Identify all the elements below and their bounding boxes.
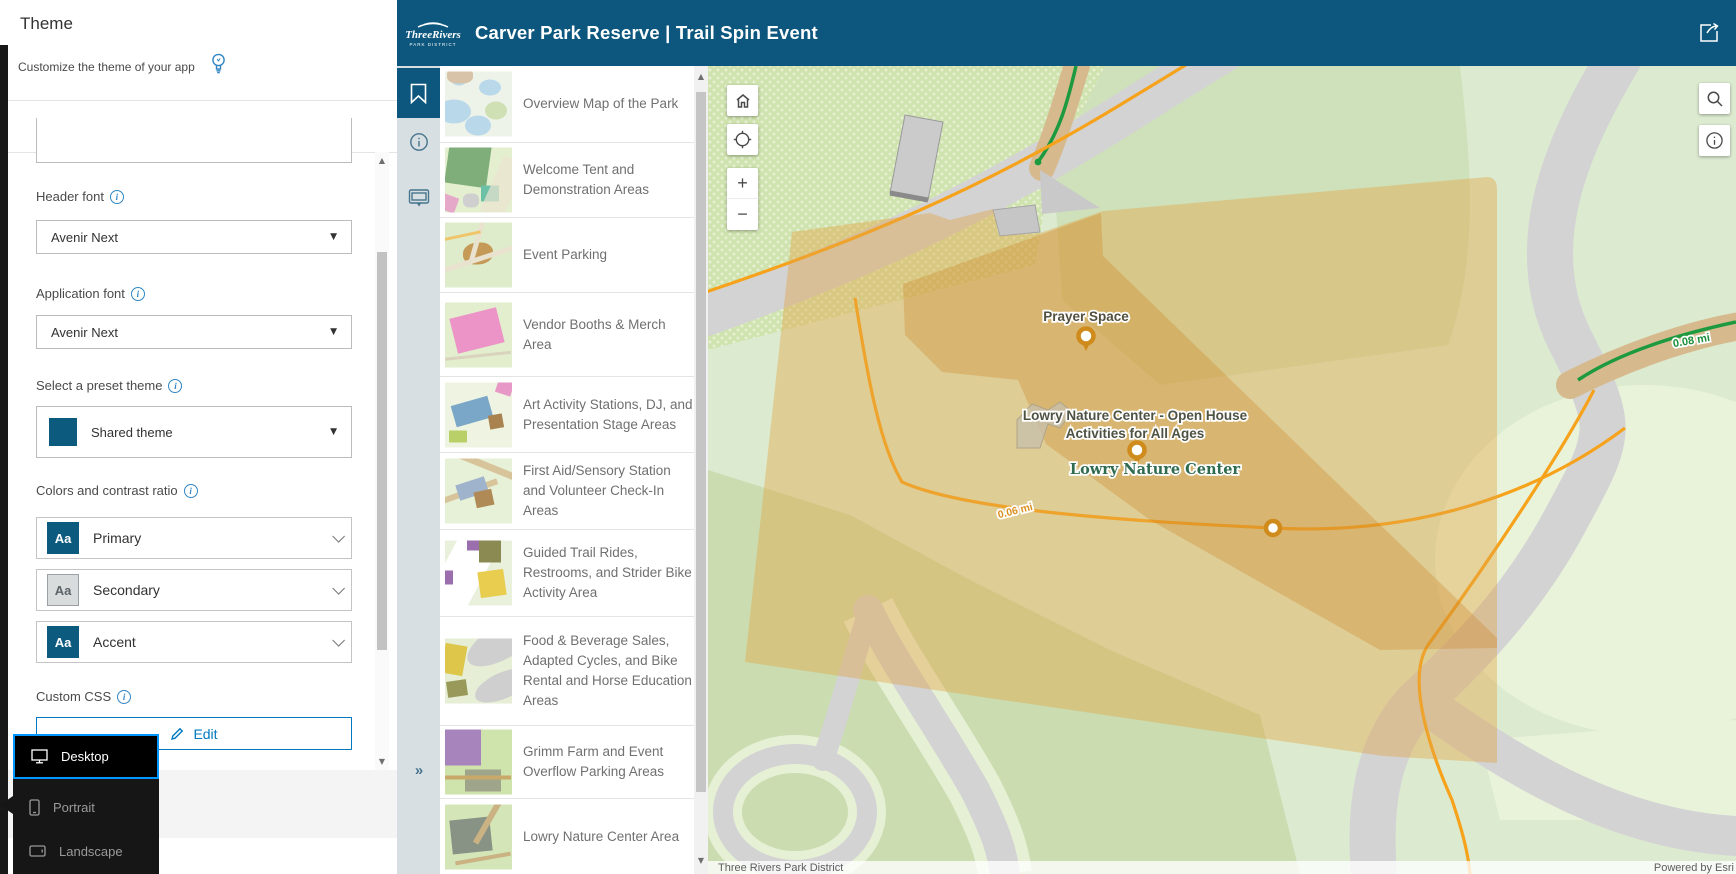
- map-graphics: Prayer Space Lowry Nature Center - Open …: [708, 66, 1736, 874]
- map-canvas[interactable]: Prayer Space Lowry Nature Center - Open …: [708, 66, 1736, 874]
- divider: [0, 100, 397, 101]
- bookmarks-tab-selected[interactable]: [397, 68, 440, 118]
- scroll-down-arrow[interactable]: ▼: [375, 757, 389, 766]
- app-info-button[interactable]: [397, 127, 440, 157]
- home-button[interactable]: [727, 85, 758, 116]
- device-mode-menu: Desktop Portrait Landscape: [13, 734, 159, 874]
- custom-css-label: Custom CSS i: [36, 689, 131, 704]
- bookmark-item[interactable]: Event Parking: [440, 218, 694, 293]
- scroll-down-arrow[interactable]: ▼: [694, 856, 708, 865]
- preset-theme-dropdown[interactable]: Shared theme▼: [36, 406, 352, 458]
- landscape-icon: [29, 845, 46, 857]
- theme-panel-scrollbar[interactable]: ▲ ▼: [375, 152, 389, 770]
- bookmark-item[interactable]: Art Activity Stations, DJ, and Presentat…: [440, 377, 694, 453]
- zoom-out-button[interactable]: −: [727, 199, 758, 230]
- legend-icon: [408, 188, 430, 209]
- bookmark-thumbnail: [445, 223, 512, 288]
- bookmark-thumbnail: [445, 459, 512, 524]
- attribution-source: Three Rivers Park District: [718, 862, 843, 874]
- panel-title: Theme: [20, 14, 73, 34]
- map-info-button[interactable]: [1699, 125, 1730, 156]
- search-button[interactable]: [1699, 83, 1730, 114]
- bookmark-thumbnail: [445, 639, 512, 704]
- scroll-up-arrow[interactable]: ▲: [375, 156, 389, 165]
- bookmark-item[interactable]: Overview Map of the Park: [440, 66, 694, 143]
- scroll-up-arrow[interactable]: ▲: [694, 72, 708, 81]
- accent-swatch: Aa: [47, 626, 79, 658]
- home-icon: [734, 92, 752, 110]
- zoom-controls: + −: [727, 168, 758, 230]
- bookmark-thumbnail: [445, 541, 512, 606]
- edit-pencil-icon: [170, 727, 184, 741]
- theme-swatch: [49, 418, 77, 446]
- primary-color-row[interactable]: Aa Primary: [36, 517, 352, 559]
- info-icon[interactable]: i: [168, 379, 182, 393]
- scrolled-text-input[interactable]: [36, 118, 352, 163]
- expand-panel-icon[interactable]: »: [397, 762, 440, 779]
- info-icon: [1705, 131, 1724, 150]
- three-rivers-logo: ThreeRivers PARK DISTRICT: [405, 19, 461, 47]
- portrait-icon: [29, 799, 40, 816]
- chevron-down-icon: [332, 582, 345, 595]
- search-icon: [1706, 90, 1724, 108]
- device-mode-desktop[interactable]: Desktop: [13, 734, 159, 779]
- zoom-in-button[interactable]: +: [727, 168, 758, 199]
- bookmark-item[interactable]: First Aid/Sensory Station and Volunteer …: [440, 453, 694, 530]
- open-house-label-line2: Activities for All Ages: [1066, 426, 1205, 441]
- scrollbar-thumb[interactable]: [377, 252, 387, 650]
- preset-theme-label: Select a preset theme i: [36, 378, 182, 393]
- export-icon[interactable]: [1698, 22, 1720, 49]
- lightbulb-icon[interactable]: [210, 52, 227, 81]
- bookmark-thumbnail: [445, 302, 512, 367]
- bookmark-item[interactable]: Food & Beverage Sales, Adapted Cycles, a…: [440, 617, 694, 726]
- bookmark-item[interactable]: Guided Trail Rides, Restrooms, and Strid…: [440, 530, 694, 617]
- bookmark-thumbnail: [445, 72, 512, 137]
- locate-icon: [733, 130, 752, 149]
- info-icon[interactable]: i: [117, 690, 131, 704]
- bookmark-item[interactable]: Lowry Nature Center Area: [440, 799, 694, 874]
- accent-color-row[interactable]: Aa Accent: [36, 621, 352, 663]
- info-icon: [409, 132, 429, 152]
- bookmark-thumbnail: [445, 382, 512, 447]
- info-icon[interactable]: i: [110, 190, 124, 204]
- popup-pointer: [0, 796, 13, 814]
- application-font-dropdown[interactable]: Avenir Next▼: [36, 315, 352, 349]
- attribution-esri: Powered by Esri: [1654, 862, 1734, 874]
- app-title: Carver Park Reserve | Trail Spin Event: [475, 22, 818, 44]
- app-header: ThreeRivers PARK DISTRICT Carver Park Re…: [397, 0, 1736, 66]
- bookmarks-scrollbar[interactable]: ▲ ▼: [694, 66, 708, 874]
- bookmark-icon: [410, 83, 427, 104]
- bookmarks-list-panel: Overview Map of the Park Welcome Tent an…: [440, 66, 708, 874]
- experience-builder-window: Theme Customize the theme of your app ‹B…: [0, 0, 1736, 874]
- chevron-down-icon: [332, 530, 345, 543]
- builder-side-rail: [0, 45, 8, 874]
- bookmark-item[interactable]: Welcome Tent and Demonstration Areas: [440, 143, 694, 218]
- application-font-label: Application font i: [36, 286, 145, 301]
- colors-contrast-label: Colors and contrast ratio i: [36, 483, 198, 498]
- bookmark-item[interactable]: Grimm Farm and Event Overflow Parking Ar…: [440, 726, 694, 799]
- chevron-down-icon: [332, 634, 345, 647]
- device-mode-portrait[interactable]: Portrait: [13, 785, 159, 829]
- secondary-swatch: Aa: [47, 574, 79, 606]
- bookmark-item[interactable]: Vendor Booths & Merch Area: [440, 293, 694, 377]
- bookmark-thumbnail: [445, 730, 512, 795]
- prayer-space-label: Prayer Space: [1043, 309, 1129, 324]
- scrollbar-thumb[interactable]: [696, 92, 706, 792]
- info-icon[interactable]: i: [184, 484, 198, 498]
- chevron-down-icon: ▼: [330, 232, 337, 242]
- attribution-bar: [708, 861, 1736, 874]
- chevron-down-icon: ▼: [330, 427, 337, 437]
- nature-center-label: Lowry Nature Center: [1070, 461, 1240, 478]
- legend-button[interactable]: [397, 183, 440, 213]
- bookmark-thumbnail: [445, 804, 512, 869]
- open-house-label-line1: Lowry Nature Center - Open House: [1023, 408, 1248, 423]
- secondary-color-row[interactable]: Aa Secondary: [36, 569, 352, 611]
- primary-swatch: Aa: [47, 522, 79, 554]
- bookmark-thumbnail: [445, 148, 512, 213]
- info-icon[interactable]: i: [131, 287, 145, 301]
- header-font-label: Header font i: [36, 189, 124, 204]
- chevron-down-icon: ▼: [330, 327, 337, 337]
- logo-swoosh-icon: [416, 19, 450, 29]
- panel-subtitle: Customize the theme of your app: [18, 60, 195, 74]
- desktop-icon: [31, 749, 48, 764]
- trail-point-marker: [1266, 521, 1280, 535]
- device-mode-landscape[interactable]: Landscape: [13, 829, 159, 873]
- header-font-dropdown[interactable]: Avenir Next▼: [36, 220, 352, 254]
- locate-button[interactable]: [727, 124, 758, 155]
